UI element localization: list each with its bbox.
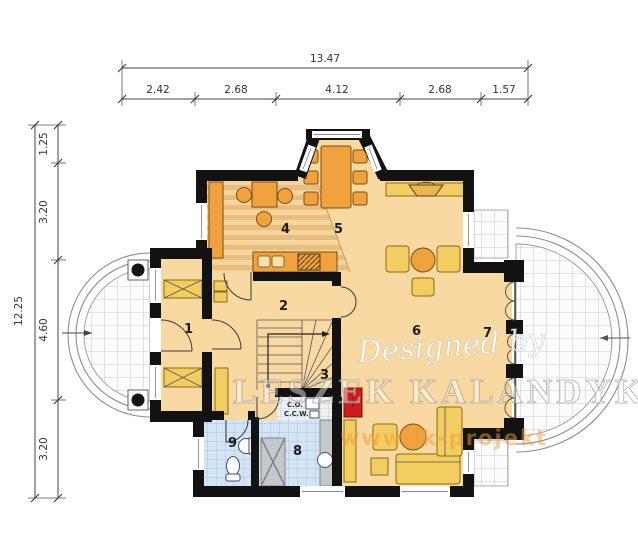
- armchair: [437, 246, 460, 272]
- hall-cabinet: [215, 368, 228, 414]
- armchair: [386, 246, 409, 272]
- terrace-steps-upper: [474, 210, 508, 258]
- porch-column: [128, 260, 148, 280]
- fireplace: [386, 182, 466, 196]
- hall-cabinet: [214, 281, 227, 291]
- watermark-url: www.lk-projekt: [340, 426, 548, 450]
- kitchen-chair: [278, 189, 293, 204]
- dim-top-seg-5: 1.57: [492, 84, 515, 96]
- dim-top-total: 13.47: [310, 53, 340, 65]
- toilet: [226, 457, 240, 482]
- floor-plan-canvas: 13.47 2.42 2.68 4.12 2.68 1.57 12.25 1.2…: [0, 0, 638, 556]
- entrance-porch: [62, 253, 150, 417]
- hall-cabinet: [214, 292, 227, 302]
- dining-chair: [353, 192, 367, 205]
- room-label-1: 1: [184, 322, 193, 337]
- dim-top-seg-2: 2.68: [224, 84, 247, 96]
- floor-plan-drawing: 13.47 2.42 2.68 4.12 2.68 1.57 12.25 1.2…: [0, 0, 638, 556]
- coffee-table-round: [411, 248, 435, 272]
- wardrobe: [164, 368, 202, 387]
- boiler-unit: [310, 411, 319, 418]
- top-dimension-chain: 13.47 2.42 2.68 4.12 2.68 1.57: [118, 53, 532, 106]
- kitchen-chair: [237, 188, 252, 203]
- dim-top-seg-4: 2.68: [428, 84, 451, 96]
- side-table: [371, 458, 388, 475]
- dim-left-seg-4: 3.20: [38, 437, 50, 460]
- kitchen-sink: [258, 256, 270, 267]
- side-chair: [412, 278, 434, 296]
- dim-left-seg-1: 1.25: [38, 132, 50, 155]
- dim-left-seg-3: 4.60: [38, 318, 50, 341]
- dim-top-seg-1: 2.42: [146, 84, 169, 96]
- kitchen-table: [252, 182, 277, 207]
- dining-chair: [353, 171, 367, 184]
- boiler-label-ccw: C.C.W.: [284, 410, 309, 418]
- wardrobe: [164, 280, 202, 298]
- sofa-seat: [396, 454, 460, 484]
- dim-left-seg-2: 3.20: [38, 200, 50, 223]
- kitchen-sink: [272, 256, 284, 267]
- porch-column: [128, 390, 148, 410]
- kitchen-stove: [298, 254, 320, 270]
- kitchen-tall-cabinet: [209, 182, 223, 258]
- room-label-8: 8: [293, 444, 302, 459]
- dining-table: [321, 146, 351, 208]
- washbasin: [318, 453, 333, 468]
- dim-left-total: 12.25: [13, 296, 25, 326]
- room-label-9: 9: [228, 436, 237, 451]
- room-label-2: 2: [279, 299, 288, 314]
- entrance-door-opening: [150, 318, 161, 352]
- dim-top-seg-3: 4.12: [325, 84, 348, 96]
- kitchen-chair: [257, 212, 272, 227]
- room-label-4: 4: [281, 222, 290, 237]
- left-dimension-chain: 12.25 1.25 3.20 4.60 3.20: [13, 121, 66, 502]
- room-label-5: 5: [334, 222, 343, 237]
- watermark-designer-name: LESZEK KALANDYK: [233, 372, 638, 411]
- dining-chair: [304, 192, 318, 205]
